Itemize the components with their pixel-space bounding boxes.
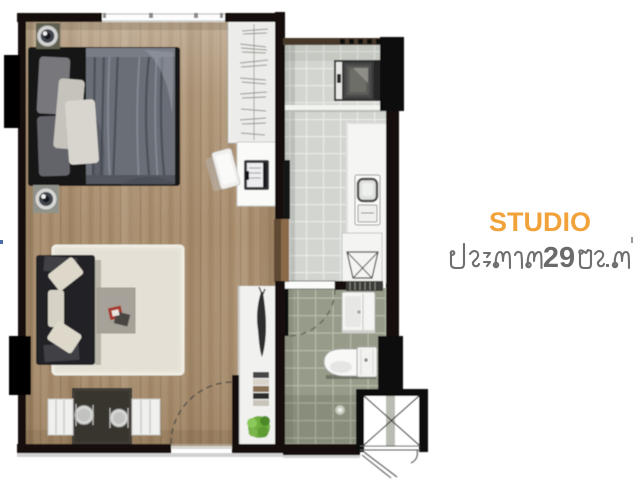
svg-text:STUDIO: STUDIO	[489, 207, 591, 237]
svg-text:29: 29	[543, 242, 575, 274]
